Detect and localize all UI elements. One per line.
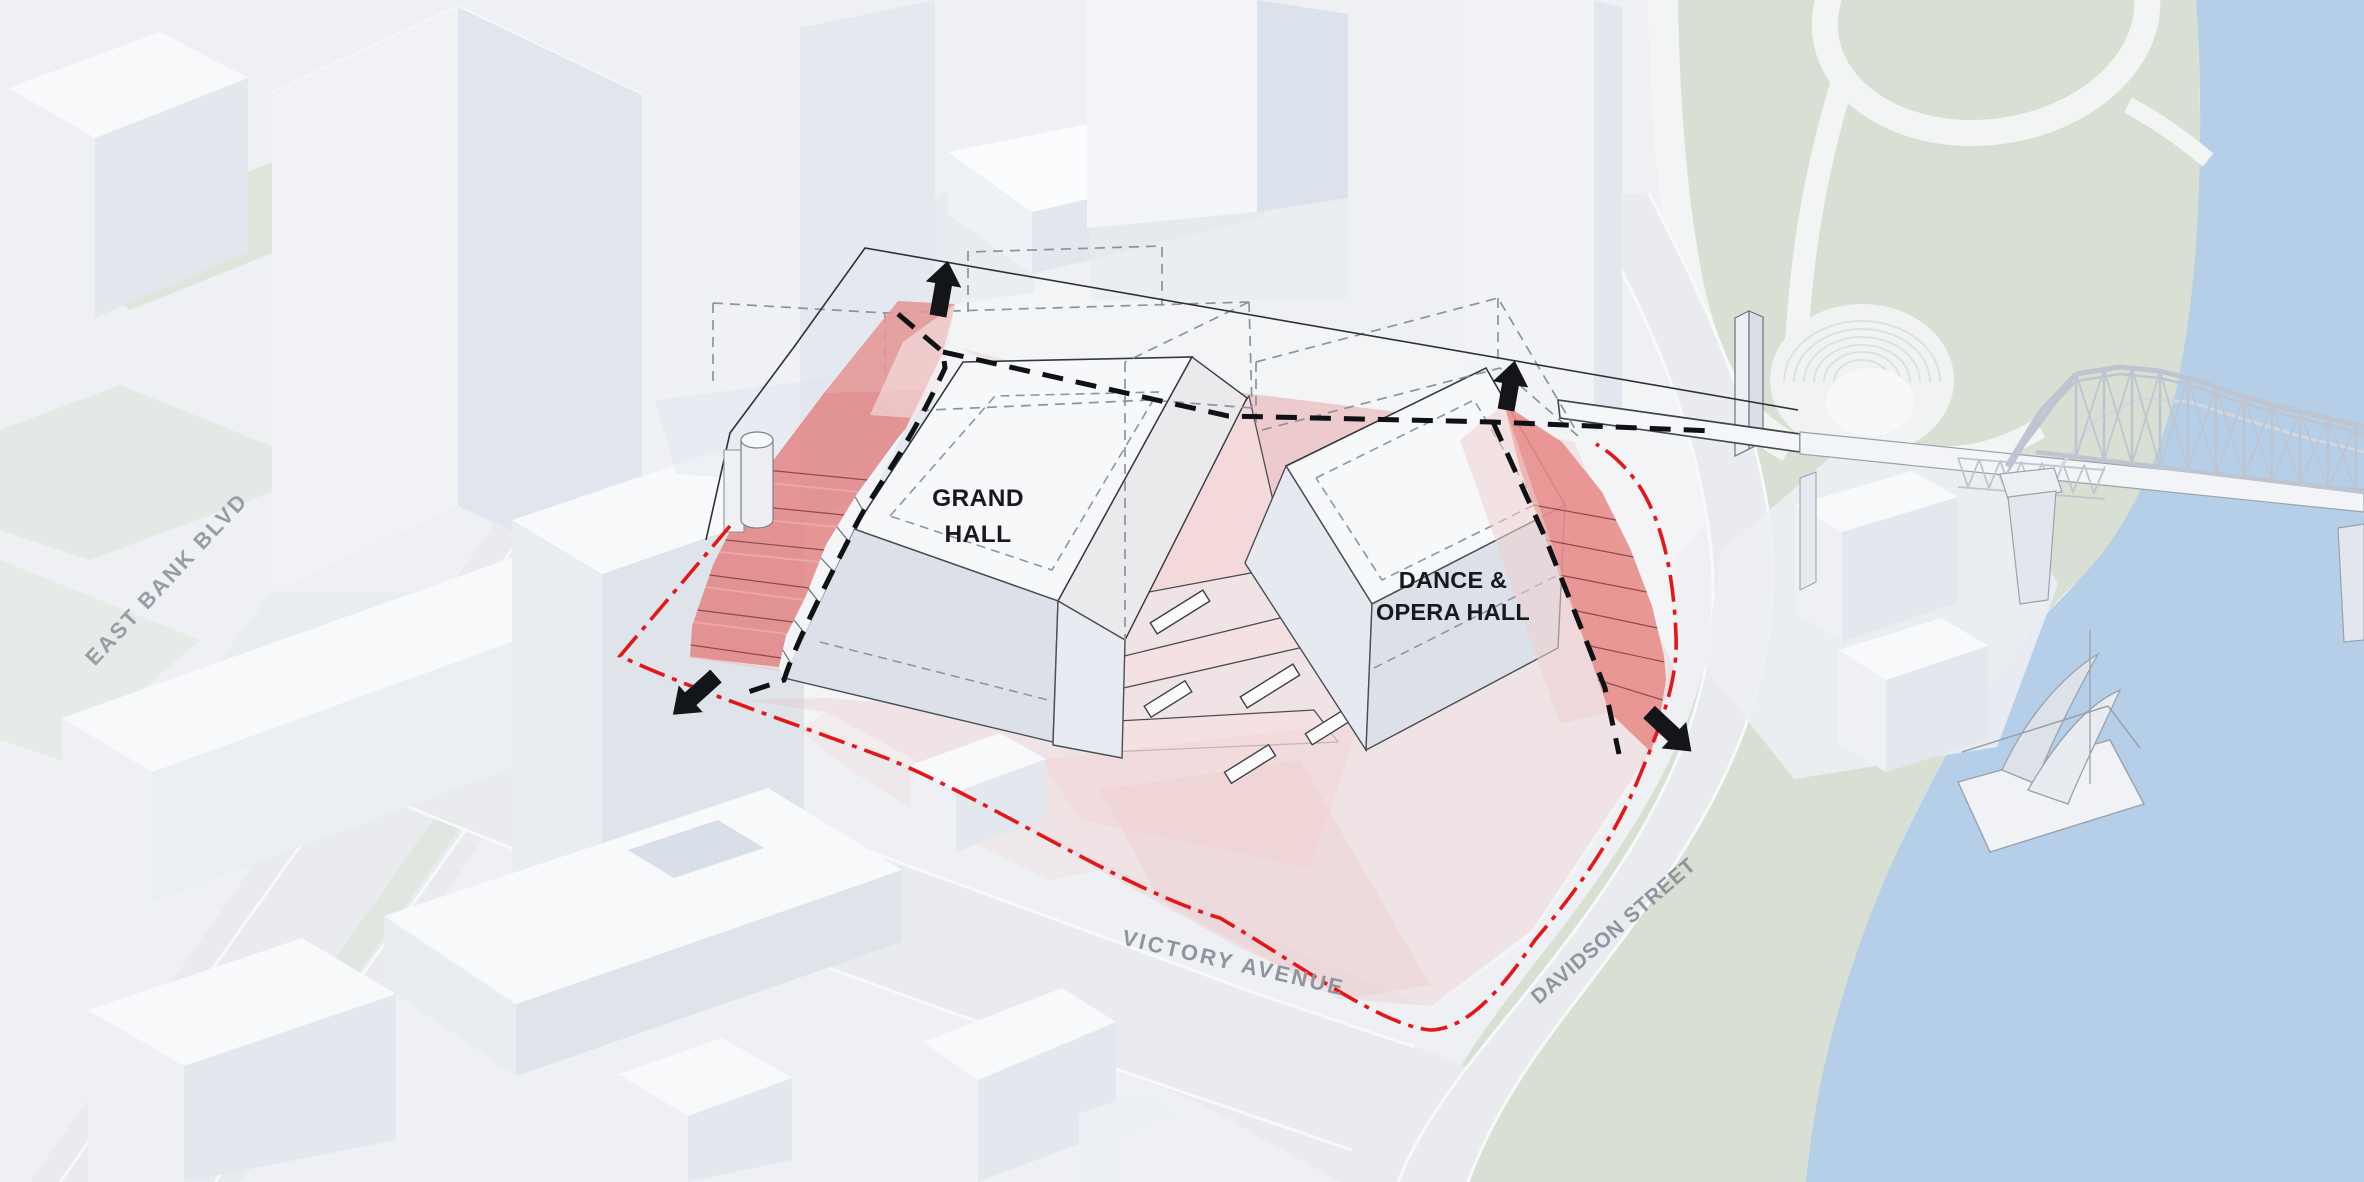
svg-text:DANCE &: DANCE &: [1399, 567, 1507, 593]
svg-text:GRAND: GRAND: [932, 485, 1024, 512]
svg-text:OPERA HALL: OPERA HALL: [1376, 599, 1530, 625]
svg-text:HALL: HALL: [945, 521, 1012, 548]
